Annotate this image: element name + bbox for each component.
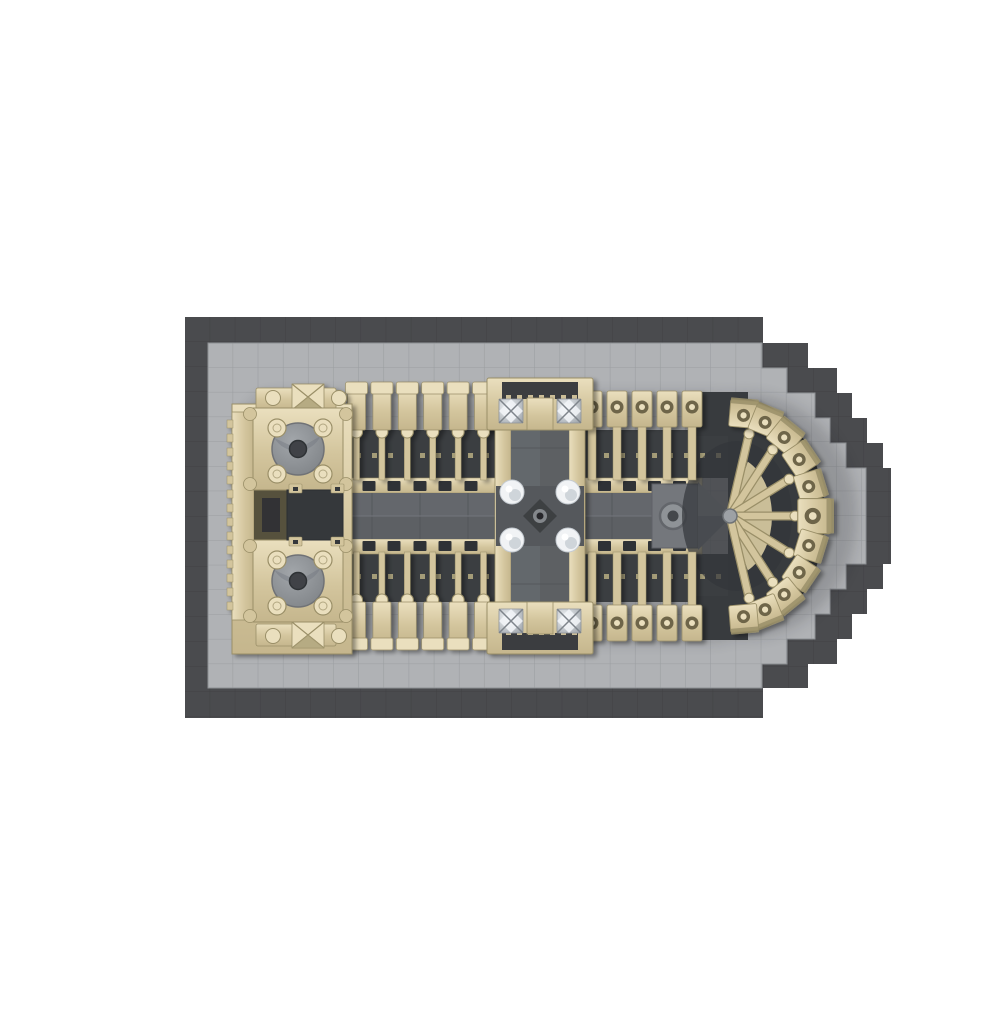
facade-wall-tooth <box>227 434 233 442</box>
aisle-crenellation-tooth <box>468 453 473 458</box>
buttress-rod <box>638 552 646 608</box>
tower-outer-stud <box>244 408 257 421</box>
buttress-rod <box>588 552 596 608</box>
transept-group <box>487 378 593 654</box>
buttress-pier-head <box>346 382 368 394</box>
facade-gallery-dark <box>262 498 280 532</box>
aisle-crenellation-tooth <box>388 574 393 579</box>
tower-corner-stud <box>314 419 332 437</box>
clerestory-window <box>623 541 636 551</box>
aisle-crenellation-tooth <box>604 574 609 579</box>
pier-stud <box>664 404 670 410</box>
tower-outer-stud <box>244 610 257 623</box>
facade-wall-tooth <box>227 476 233 484</box>
buttress-rod <box>663 424 671 480</box>
facade-wall-tooth <box>227 574 233 582</box>
tower-corner-stud <box>268 597 286 615</box>
rose-window-band <box>502 633 578 650</box>
facade-west-wall <box>232 412 254 620</box>
clerestory-window <box>439 541 452 551</box>
chrome-finial <box>557 399 581 423</box>
buttress-rod <box>613 424 621 480</box>
clerestory-window <box>388 481 401 491</box>
aisle-crenellation-tooth <box>372 574 377 579</box>
apse-chapel <box>798 499 834 534</box>
pier-stud <box>689 404 695 410</box>
chapel-outer-lip <box>827 499 835 534</box>
facade-wall-tooth <box>227 448 233 456</box>
chrome-finial <box>499 399 523 423</box>
tower-corner-stud <box>268 551 286 569</box>
clerestory-window <box>465 481 478 491</box>
buttress-pier-head <box>447 382 469 394</box>
facade-wall-tooth <box>227 420 233 428</box>
facade-wall-tooth <box>227 504 233 512</box>
tower-corner-stud <box>314 551 332 569</box>
facade-wall-tooth <box>227 560 233 568</box>
choir-ring-hole <box>668 511 679 522</box>
facade-stud <box>266 629 281 644</box>
tower-disc-hole <box>290 573 307 590</box>
aisle-crenellation-tooth <box>652 453 657 458</box>
tower-corner-stud <box>268 465 286 483</box>
facade-stud <box>266 391 281 406</box>
courtyard-clip-notch <box>335 540 340 544</box>
tower-outer-stud <box>244 478 257 491</box>
buttress-rod <box>688 424 696 480</box>
pier-stud <box>639 404 645 410</box>
facade-stud <box>332 629 347 644</box>
aisle-crenellation-tooth <box>652 574 657 579</box>
pier-stud <box>664 620 670 626</box>
clerestory-window <box>623 481 636 491</box>
buttress-rod <box>588 424 596 480</box>
west-facade-group <box>227 384 353 654</box>
facade-wall-tooth <box>227 518 233 526</box>
aisle-crenellation-tooth <box>420 453 425 458</box>
chapel-stud <box>809 512 817 520</box>
facade-stud <box>332 391 347 406</box>
aisle-crenellation-tooth <box>468 574 473 579</box>
facade-wall-tooth <box>227 462 233 470</box>
buttress-pier-head <box>371 638 393 650</box>
apse-rod-capital <box>784 548 794 558</box>
west-facade <box>227 384 353 654</box>
facade-courtyard <box>287 490 343 540</box>
crossing-pinnacle-highlight <box>506 486 513 493</box>
clerestory-window <box>439 481 452 491</box>
courtyard-clip-notch <box>293 487 298 491</box>
clerestory-window <box>388 541 401 551</box>
buttress-pier-head <box>422 638 444 650</box>
product-image: Aerial top view of a brick-built Notre-D… <box>40 16 1000 1016</box>
clerestory-window <box>414 541 427 551</box>
buttress-pier-head <box>371 382 393 394</box>
crossing-pinnacle-highlight <box>506 534 513 541</box>
transept-end-pillar <box>527 602 553 634</box>
buttress-pier-head <box>422 382 444 394</box>
apse-chapel <box>729 603 759 634</box>
apse-rod-capital <box>784 474 794 484</box>
aisle-crenellation-tooth <box>372 453 377 458</box>
tower-disc-hole <box>290 441 307 458</box>
tower-outer-stud <box>340 610 353 623</box>
clerestory-window <box>363 541 376 551</box>
facade-wall-tooth <box>227 490 233 498</box>
pier-stud <box>614 620 620 626</box>
tower-outer-stud <box>340 408 353 421</box>
aisle-crenellation-tooth <box>436 453 441 458</box>
pier-stud <box>614 404 620 410</box>
tower-corner-stud <box>268 419 286 437</box>
tower-corner-stud <box>314 465 332 483</box>
crossing-pinnacle-highlight <box>562 534 569 541</box>
pier-stud <box>639 620 645 626</box>
tower-corner-stud <box>314 597 332 615</box>
aisle-crenellation-tooth <box>420 574 425 579</box>
facade-wall-tooth <box>227 546 233 554</box>
clerestory-window <box>598 481 611 491</box>
clerestory-window <box>363 481 376 491</box>
tower-outer-stud <box>244 540 257 553</box>
buttress-pier-head <box>396 638 418 650</box>
transept <box>487 378 593 654</box>
buttress-rod <box>663 552 671 608</box>
facade-wall-tooth <box>227 588 233 596</box>
transept-end-pillar <box>527 398 553 430</box>
pier-stud <box>689 620 695 626</box>
buttress-pier-head <box>396 382 418 394</box>
clerestory-window <box>598 541 611 551</box>
aisle-crenellation-tooth <box>388 453 393 458</box>
chrome-finial <box>557 609 581 633</box>
aisle-crenellation-tooth <box>604 453 609 458</box>
buttress-rod <box>638 424 646 480</box>
courtyard-clip-notch <box>293 540 298 544</box>
crossing-spire-hole <box>537 513 544 520</box>
cathedral-top-view-render <box>40 16 1000 1016</box>
clerestory-window <box>414 481 427 491</box>
apse-hub <box>723 509 737 523</box>
buttress-pier-head <box>447 638 469 650</box>
crossing-pinnacle-highlight <box>562 486 569 493</box>
aisle-crenellation-tooth <box>436 574 441 579</box>
clerestory-window <box>465 541 478 551</box>
buttress-rod <box>688 552 696 608</box>
facade-wall-tooth <box>227 532 233 540</box>
facade-wall-tooth <box>227 602 233 610</box>
buttress-rod <box>613 552 621 608</box>
chrome-finial <box>499 609 523 633</box>
courtyard-clip-notch <box>335 487 340 491</box>
